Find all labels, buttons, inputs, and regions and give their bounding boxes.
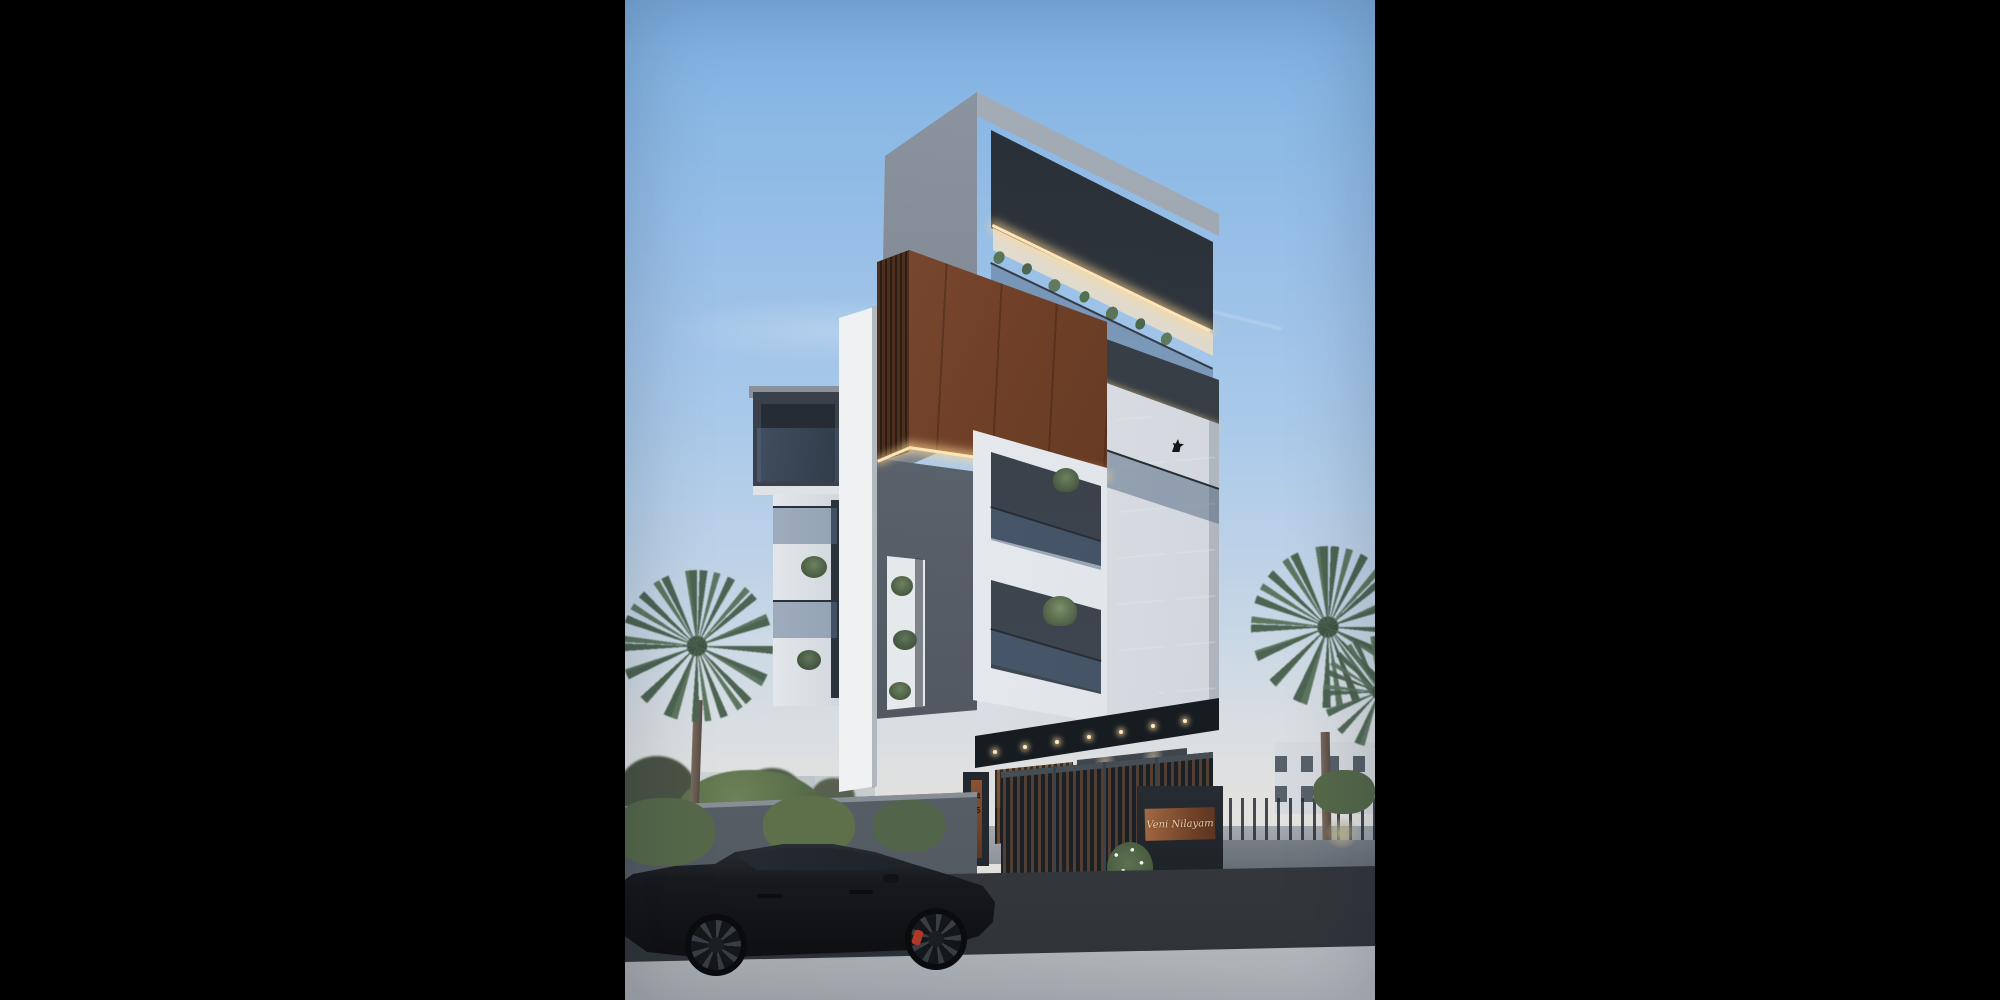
left-tower-plant-1 [801,556,827,578]
balcony-plant-2 [1043,596,1077,626]
signage-plaque-text: Veni Nilayam [1146,818,1214,831]
soffit-downlight-2 [1023,745,1027,749]
gate-frame-2 [1103,762,1106,890]
recessed-plant-3 [889,682,911,700]
soffit-downlight-6 [1151,724,1155,728]
car-door-handle-2 [849,890,873,894]
letterbox-canvas: 14 55 Veni Nilayam [0,0,2000,1000]
recessed-plant-2 [893,630,917,650]
soffit-downlight-4 [1087,735,1091,739]
left-tower-balcony-glass-2 [773,600,837,638]
left-palm-crown [625,570,773,722]
soffit-downlight-5 [1119,730,1123,734]
right-wall-hedge [1313,770,1375,814]
recessed-plant-1 [891,576,913,596]
soffit-downlight-7 [1183,719,1187,723]
soffit-downlight-1 [993,750,997,754]
soffit-downlight-3 [1055,740,1059,744]
right-pampas [1325,818,1359,848]
signage-plaque: Veni Nilayam [1145,807,1216,841]
left-tower-balcony-glass-1 [773,506,837,544]
balcony-plant-1 [1053,468,1079,492]
car-mirror [883,874,899,883]
left-tower-plant-2 [797,650,821,670]
left-box-glass [757,428,839,482]
architectural-render-photo: 14 55 Veni Nilayam [625,0,1375,1000]
